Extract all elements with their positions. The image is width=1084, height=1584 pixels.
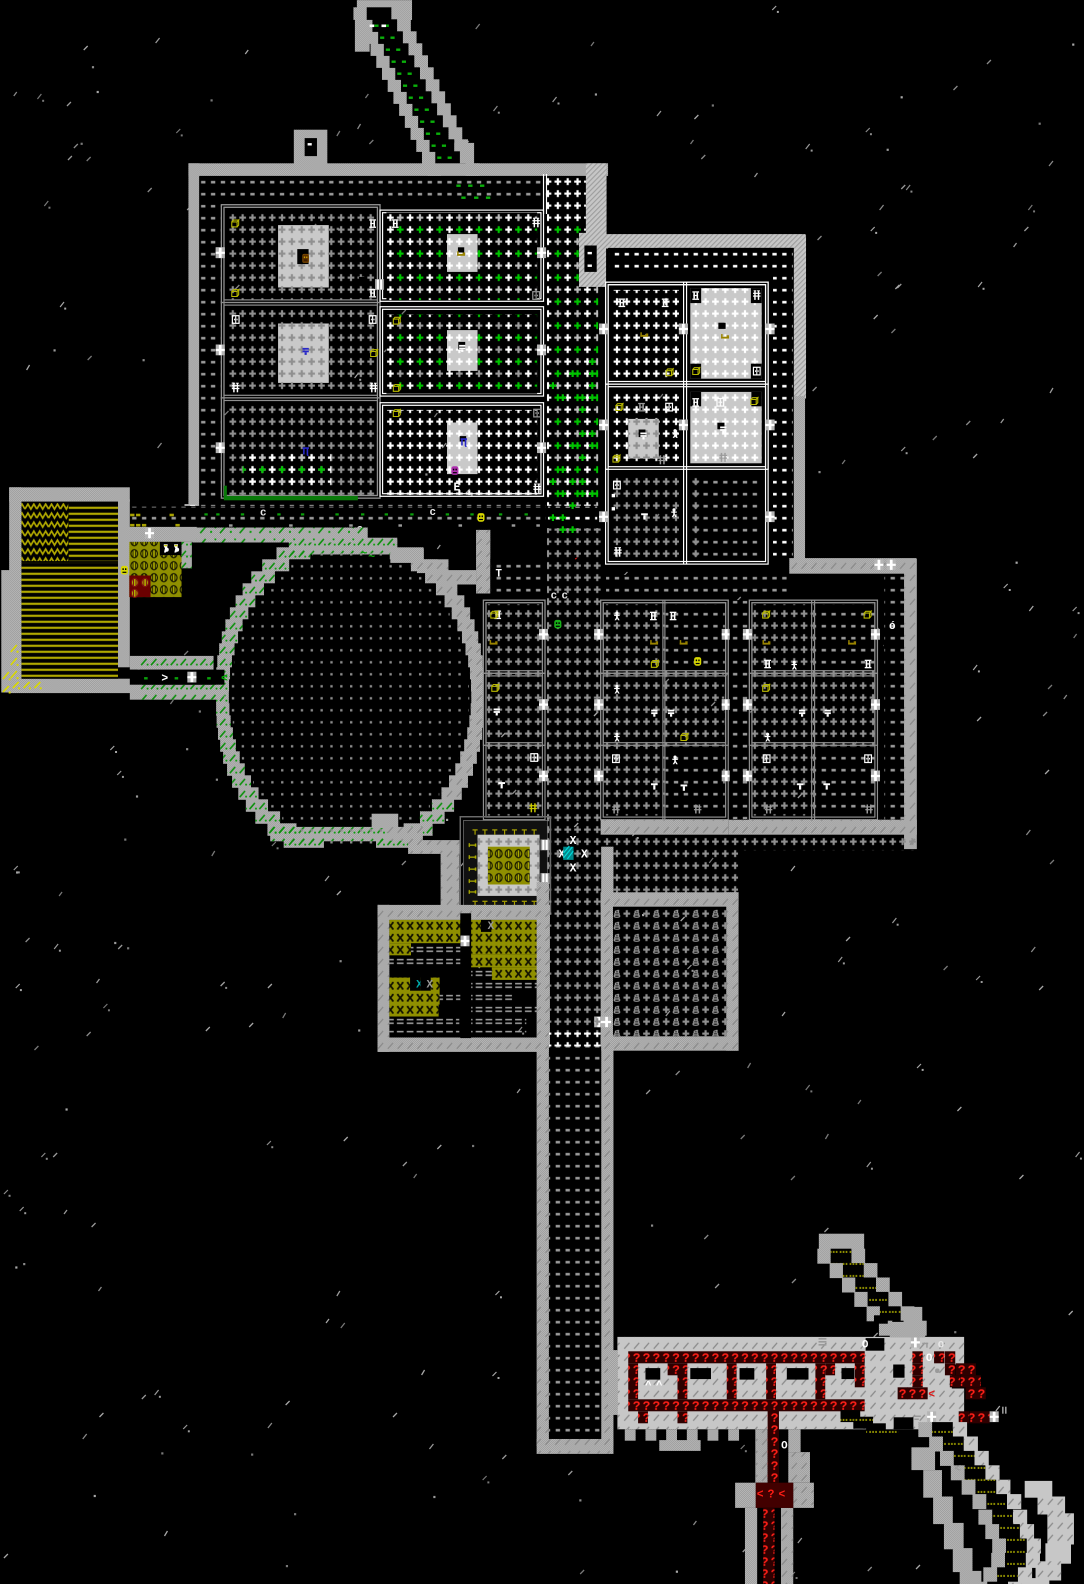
svg-text:?: ? (768, 1489, 775, 1501)
svg-text:>: > (161, 673, 168, 685)
svg-text:X: X (581, 850, 588, 862)
svg-text:X: X (488, 921, 495, 933)
svg-text:^: ^ (656, 1381, 663, 1393)
svg-text:X: X (570, 836, 577, 848)
svg-text:<: < (928, 1390, 935, 1402)
svg-text:O: O (938, 1339, 944, 1351)
svg-text:O: O (926, 1353, 933, 1365)
svg-text:c: c (551, 590, 557, 602)
svg-text:c: c (561, 590, 567, 602)
svg-text:O: O (781, 1441, 788, 1453)
svg-text:<: < (954, 1463, 960, 1475)
svg-text:~: ~ (368, 550, 375, 564)
svg-text:T: T (495, 568, 502, 580)
svg-text:^: ^ (645, 1381, 652, 1393)
svg-text:~: ~ (360, 546, 367, 560)
svg-text:X: X (570, 863, 577, 875)
svg-text:<: < (778, 1489, 785, 1501)
svg-text:ó: ó (889, 621, 896, 633)
svg-text:<: < (221, 673, 228, 685)
svg-text:c: c (260, 508, 266, 520)
svg-text:X: X (427, 979, 434, 991)
svg-text:O: O (862, 1339, 869, 1351)
svg-text:c: c (429, 507, 435, 519)
svg-text:<: < (757, 1489, 764, 1501)
svg-text:E: E (453, 482, 460, 494)
